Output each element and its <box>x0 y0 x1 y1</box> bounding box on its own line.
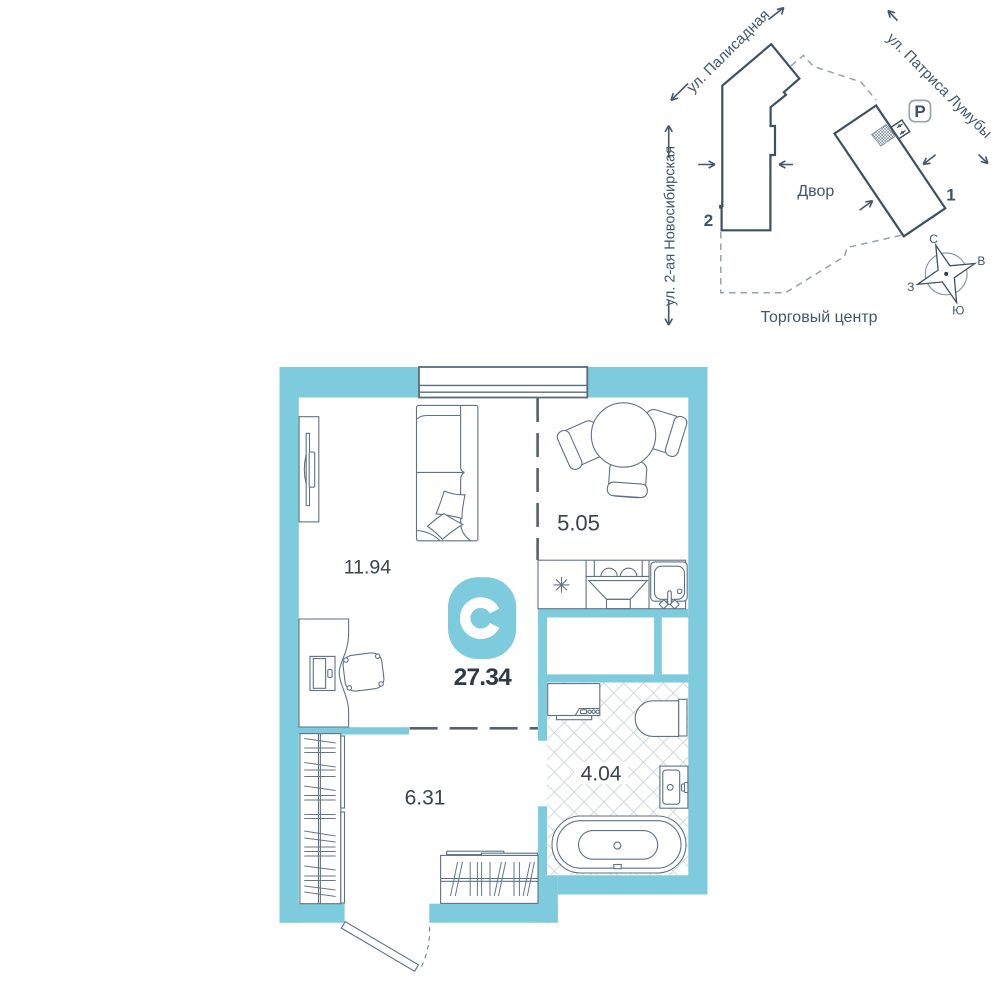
svg-text:5.05: 5.05 <box>557 511 600 536</box>
svg-text:С: С <box>929 232 938 246</box>
svg-text:В: В <box>977 254 985 268</box>
svg-text:2: 2 <box>704 211 713 230</box>
svg-text:1: 1 <box>946 186 955 205</box>
svg-text:Ю: Ю <box>952 304 964 318</box>
svg-text:6.31: 6.31 <box>405 787 446 810</box>
svg-text:4.04: 4.04 <box>581 763 622 786</box>
svg-text:Двор: Двор <box>797 183 834 200</box>
svg-text:11.94: 11.94 <box>344 557 392 579</box>
svg-text:ул. 2-ая Новосибирская: ул. 2-ая Новосибирская <box>663 146 679 306</box>
svg-text:Торговый центр: Торговый центр <box>760 309 877 326</box>
svg-text:27.34: 27.34 <box>454 664 512 691</box>
svg-text:З: З <box>907 280 914 294</box>
svg-text:P: P <box>914 102 925 121</box>
